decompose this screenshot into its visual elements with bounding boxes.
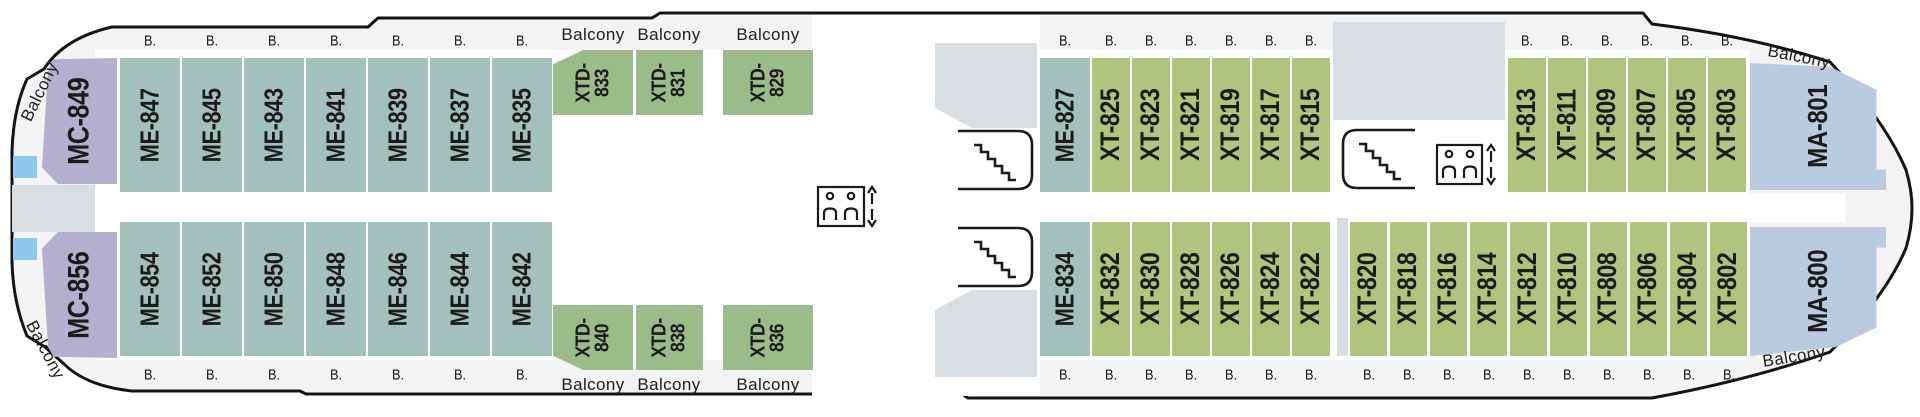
cabin-label: XT-825 [1098, 89, 1124, 161]
balcony-marker: B. [144, 367, 156, 384]
cabin-label: ME-842 [510, 252, 535, 326]
cabin-xt-813[interactable]: XT-813 [1508, 58, 1546, 192]
cabin-xt-821[interactable]: XT-821 [1172, 58, 1210, 192]
balcony-marker: B. [1305, 33, 1317, 50]
balcony-marker: B. [1681, 33, 1693, 50]
balcony-label: Balcony [561, 375, 624, 395]
cabin-me-842[interactable]: ME-842 [492, 222, 552, 356]
cabin-label: MA-800 [1805, 250, 1832, 333]
balcony-marker: B. [1602, 367, 1614, 384]
cabin-xt-828[interactable]: XT-828 [1172, 222, 1210, 356]
cabin-label: XT-807 [1634, 89, 1660, 161]
cabin-label: XTD- 829 [749, 63, 787, 102]
cabin-label: ME-844 [448, 252, 473, 326]
cabin-label: ME-852 [200, 252, 225, 326]
balcony-marker: B. [1145, 367, 1157, 384]
cabin-me-845[interactable]: ME-845 [182, 58, 242, 192]
balcony-marker: B. [1682, 367, 1694, 384]
cabin-label: ME-827 [1053, 88, 1078, 162]
cabin-xtd-836[interactable]: XTD- 836 [723, 305, 813, 370]
cabin-label: XT-821 [1178, 89, 1204, 161]
balcony-marker: B. [1601, 33, 1613, 50]
cabin-label: ME-843 [262, 88, 287, 162]
cabin-xtd-833[interactable]: XTD- 833 [553, 50, 633, 115]
balcony-marker: B. [392, 33, 404, 50]
balcony-marker: B. [1482, 367, 1494, 384]
cabin-label: XT-806 [1636, 253, 1662, 325]
cabin-label: XTD- 831 [650, 63, 688, 102]
cabin-label: XTD- 840 [574, 318, 612, 357]
cabin-xt-808[interactable]: XT-808 [1590, 222, 1627, 356]
balcony-marker: B. [144, 33, 156, 50]
balcony-marker: B. [454, 33, 466, 50]
balcony-label: Balcony [736, 25, 799, 45]
cabin-label: XT-809 [1594, 89, 1620, 161]
cabin-label: XT-803 [1714, 89, 1740, 161]
balcony-marker: B. [392, 367, 404, 384]
cabin-label: ME-835 [510, 88, 535, 162]
balcony-marker: B. [454, 367, 466, 384]
cabin-me-843[interactable]: ME-843 [244, 58, 304, 192]
cabin-xtd-831[interactable]: XTD- 831 [636, 50, 703, 115]
whirlpool-icon [13, 156, 37, 178]
cabin-xt-805[interactable]: XT-805 [1668, 58, 1706, 192]
cabin-xt-802[interactable]: XT-802 [1710, 222, 1747, 356]
balcony-marker: B. [1721, 33, 1733, 50]
cabin-xt-818[interactable]: XT-818 [1390, 222, 1427, 356]
cabin-label: MC-849 [65, 77, 94, 164]
balcony-marker: B. [1265, 33, 1277, 50]
balcony-marker: B. [1059, 367, 1071, 384]
cabin-xt-812[interactable]: XT-812 [1510, 222, 1547, 356]
balcony-marker: B. [1185, 367, 1197, 384]
cabin-label: XT-820 [1356, 253, 1382, 325]
balcony-marker: B. [268, 367, 280, 384]
cabin-me-846[interactable]: ME-846 [368, 222, 428, 356]
cabin-xt-826[interactable]: XT-826 [1212, 222, 1250, 356]
balcony-marker: B. [1305, 367, 1317, 384]
balcony-marker: B. [1722, 367, 1734, 384]
balcony-marker: B. [1362, 367, 1374, 384]
cabin-label: XT-802 [1716, 253, 1742, 325]
cabin-xt-806[interactable]: XT-806 [1630, 222, 1667, 356]
cabin-label: ME-848 [324, 252, 349, 326]
cabin-label: ME-839 [386, 88, 411, 162]
cabin-xt-807[interactable]: XT-807 [1628, 58, 1666, 192]
cabin-label: XT-828 [1178, 253, 1204, 325]
cabin-xt-819[interactable]: XT-819 [1212, 58, 1250, 192]
balcony-marker: B. [1265, 367, 1277, 384]
balcony-marker: B. [1442, 367, 1454, 384]
balcony-marker: B. [1522, 367, 1534, 384]
cabin-label: XT-808 [1596, 253, 1622, 325]
cabin-xt-830[interactable]: XT-830 [1132, 222, 1170, 356]
cabin-label: ME-845 [200, 88, 225, 162]
cabin-xt-816[interactable]: XT-816 [1430, 222, 1467, 356]
cabin-xt-810[interactable]: XT-810 [1550, 222, 1587, 356]
cabin-label: XT-824 [1258, 253, 1284, 325]
cabin-label: XT-811 [1554, 89, 1580, 160]
balcony-marker: B. [1402, 367, 1414, 384]
balcony-marker: B. [516, 33, 528, 50]
cabin-xt-823[interactable]: XT-823 [1132, 58, 1170, 192]
balcony-marker: B. [1105, 33, 1117, 50]
balcony-marker: B. [1642, 367, 1654, 384]
balcony-label: Balcony [561, 25, 624, 45]
cabin-label: XT-823 [1138, 89, 1164, 161]
cabin-label: ME-854 [138, 252, 163, 326]
cabin-me-837[interactable]: ME-837 [430, 58, 490, 192]
cabin-label: XT-810 [1556, 253, 1582, 325]
cabin-label: XT-805 [1674, 89, 1700, 161]
balcony-label: Balcony [637, 25, 700, 45]
cabin-xt-811[interactable]: XT-811 [1548, 58, 1586, 192]
cabin-xt-822[interactable]: XT-822 [1292, 222, 1330, 356]
cabin-label: XT-812 [1516, 253, 1542, 325]
cabin-me-854[interactable]: ME-854 [120, 222, 180, 356]
cabin-xt-815[interactable]: XT-815 [1292, 58, 1330, 192]
deck-plan: MC-849ME-847B.ME-845B.ME-843B.ME-841B.ME… [0, 0, 1920, 417]
cabin-mc-856[interactable]: MC-856 [42, 232, 117, 358]
cabin-label: ME-841 [324, 88, 349, 162]
balcony-marker: B. [1225, 367, 1237, 384]
balcony-marker: B. [1561, 33, 1573, 50]
balcony-marker: B. [516, 367, 528, 384]
cabin-me-841[interactable]: ME-841 [306, 58, 366, 192]
cabin-label: XT-832 [1098, 253, 1124, 325]
cabin-xt-803[interactable]: XT-803 [1708, 58, 1746, 192]
cabin-label: XT-818 [1396, 253, 1422, 325]
cabin-label: XT-815 [1298, 89, 1324, 161]
balcony-marker: B. [1562, 367, 1574, 384]
cabin-xtd-840[interactable]: XTD- 840 [553, 305, 633, 370]
cabin-label: XT-814 [1476, 253, 1502, 325]
balcony-marker: B. [268, 33, 280, 50]
balcony-marker: B. [330, 33, 342, 50]
balcony-marker: B. [1185, 33, 1197, 50]
cabin-xt-832[interactable]: XT-832 [1092, 222, 1130, 356]
balcony-marker: B. [1059, 33, 1071, 50]
balcony-marker: B. [1641, 33, 1653, 50]
cabin-label: XT-819 [1218, 89, 1244, 161]
cabin-label: ME-847 [138, 88, 163, 162]
balcony-marker: B. [330, 367, 342, 384]
cabin-me-827[interactable]: ME-827 [1040, 58, 1090, 192]
cabin-me-835[interactable]: ME-835 [492, 58, 552, 192]
cabin-xt-817[interactable]: XT-817 [1252, 58, 1290, 192]
cabin-xtd-838[interactable]: XTD- 838 [636, 305, 703, 370]
balcony-marker: B. [1105, 367, 1117, 384]
cabin-label: MC-856 [65, 251, 94, 338]
cabin-label: ME-850 [262, 252, 287, 326]
cabin-label: ME-834 [1053, 252, 1078, 326]
cabin-label: ME-846 [386, 252, 411, 326]
balcony-marker: B. [206, 367, 218, 384]
balcony-marker: B. [1521, 33, 1533, 50]
balcony-label: Balcony [637, 375, 700, 395]
cabin-xt-820[interactable]: XT-820 [1350, 222, 1387, 356]
cabin-label: XTD- 833 [574, 63, 612, 102]
cabin-label: XT-817 [1258, 89, 1284, 161]
cabin-label: XTD- 836 [749, 318, 787, 357]
cabin-xt-809[interactable]: XT-809 [1588, 58, 1626, 192]
cabin-me-834[interactable]: ME-834 [1040, 222, 1090, 356]
cabin-me-852[interactable]: ME-852 [182, 222, 242, 356]
balcony-marker: B. [206, 33, 218, 50]
cabin-label: MA-801 [1805, 85, 1832, 168]
whirlpool-icon [13, 238, 37, 260]
cabin-me-847[interactable]: ME-847 [120, 58, 180, 192]
cabin-xt-824[interactable]: XT-824 [1252, 222, 1290, 356]
balcony-label: Balcony [736, 375, 799, 395]
cabin-xt-804[interactable]: XT-804 [1670, 222, 1707, 356]
balcony-marker: B. [1145, 33, 1157, 50]
cabin-me-848[interactable]: ME-848 [306, 222, 366, 356]
cabin-label: XT-822 [1298, 253, 1324, 325]
cabin-label: XT-816 [1436, 253, 1462, 325]
balcony-marker: B. [1225, 33, 1237, 50]
cabin-me-839[interactable]: ME-839 [368, 58, 428, 192]
cabin-xt-825[interactable]: XT-825 [1092, 58, 1130, 192]
cabin-me-844[interactable]: ME-844 [430, 222, 490, 356]
cabin-label: ME-837 [448, 88, 473, 162]
cabin-label: XT-826 [1218, 253, 1244, 325]
cabin-label: XTD- 838 [650, 318, 688, 357]
cabin-xt-814[interactable]: XT-814 [1470, 222, 1507, 356]
cabin-me-850[interactable]: ME-850 [244, 222, 304, 356]
cabin-label: XT-804 [1676, 253, 1702, 325]
cabin-label: XT-813 [1514, 89, 1540, 161]
cabin-label: XT-830 [1138, 253, 1164, 325]
cabin-xtd-829[interactable]: XTD- 829 [723, 50, 813, 115]
